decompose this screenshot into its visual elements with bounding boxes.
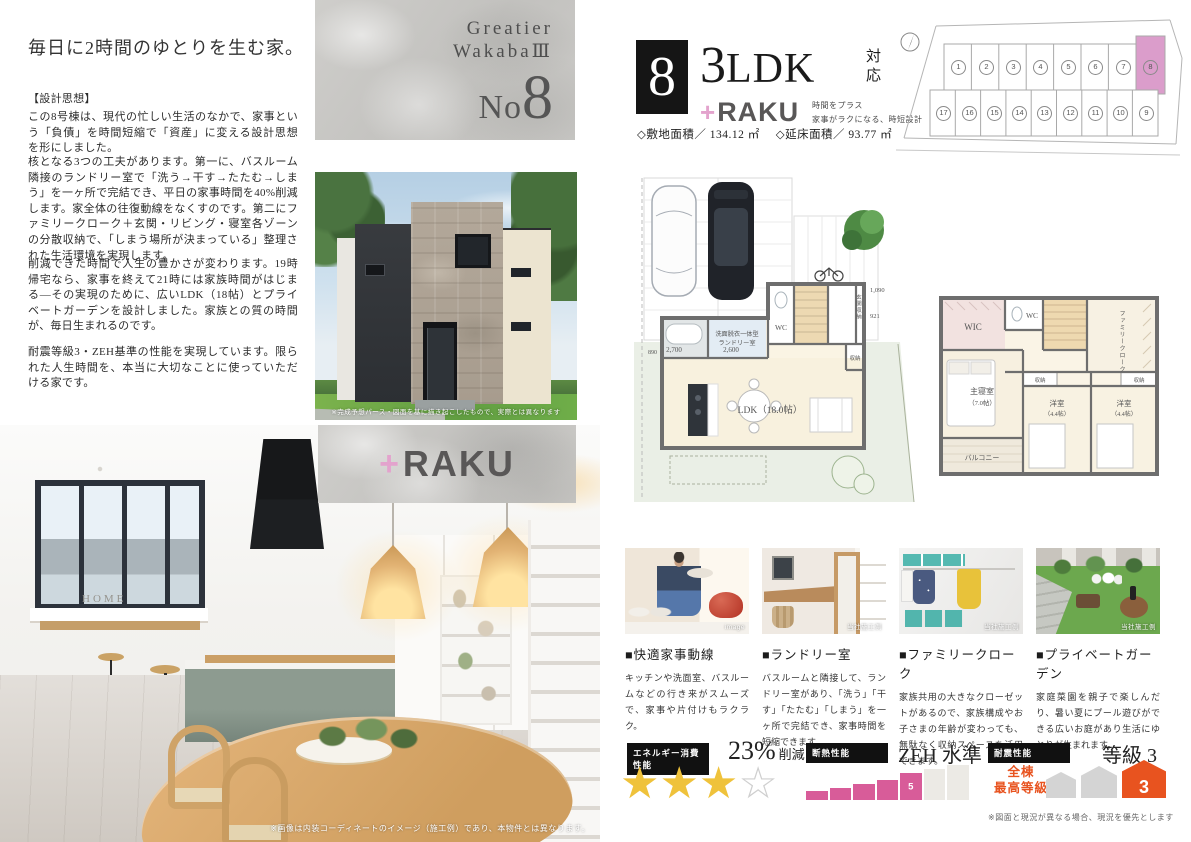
photo-tag: 当社施工例 xyxy=(984,621,1019,631)
storage-label-1f: 収納 xyxy=(849,354,861,362)
navy-garment xyxy=(913,570,935,604)
photo-tag: 当社施工例 xyxy=(847,621,882,631)
brand-block: Greatier WakabaⅢ No8 xyxy=(315,0,575,140)
stone-window xyxy=(455,234,491,268)
balcony-label: バルコニー xyxy=(965,454,1000,462)
paragraph-4: 耐震等級3・ZEH基準の性能を実現しています。限られた人生時間を、本当に大切なこ… xyxy=(28,345,298,392)
red-pot xyxy=(709,592,743,618)
brand-number-value: 8 xyxy=(522,64,553,132)
lot-number-13: 13 xyxy=(1037,106,1052,121)
site-area: ◇敷地面積／ 134.12 ㎡ xyxy=(637,129,760,141)
raku-plus-icon-small: + xyxy=(700,97,715,128)
paragraph-2: 核となる3つの工夫があります。第一に、バスルーム隣接のランドリー室で「洗う→干す… xyxy=(28,155,298,264)
page-title: 毎日に2時間のゆとりを生む家。 xyxy=(28,34,304,60)
plan-type-digit: 3 xyxy=(700,37,726,94)
energy-suffix: 削減 xyxy=(779,747,805,762)
house-icon-small xyxy=(1046,772,1076,798)
photo-tag: 当社施工例 xyxy=(1121,621,1156,631)
plan-type-letters: LDK xyxy=(726,46,815,92)
seismic-badge-line2: 最高等級 xyxy=(993,780,1049,796)
site-plan: 1 2 3 4 5 6 7 8 17 16 15 14 13 12 11 10 … xyxy=(888,8,1188,156)
cream-window-lower xyxy=(511,322,531,331)
star-filled-icon: ★ xyxy=(659,759,698,808)
disclaimer-note: ※図面と現況が異なる場合、現況を優先とします xyxy=(988,812,1174,823)
star-empty-icon: ☆ xyxy=(738,759,777,808)
lot-number-12: 12 xyxy=(1063,106,1078,121)
brand-number: No8 xyxy=(478,63,553,134)
feature-body: キッチンや洗面室、バスルームなどの行き来がスムーズで、家事や片付けもラクラク。 xyxy=(625,670,749,734)
dim-890: 890 xyxy=(648,350,657,356)
floor-plan-1f: 2,700 2,600 890 1,090 921 洗面脱衣一体型 ランドリー室… xyxy=(632,172,922,504)
paragraph-1: この8号棟は、現代の忙しい生活のなかで、家事という「負債」を時間短縮で「資産」に… xyxy=(28,110,298,157)
white-garden-chairs xyxy=(1088,570,1122,586)
feature-photo-cloak: 当社施工例 xyxy=(899,548,1023,634)
design-philosophy-label: 【設計思想】 xyxy=(28,92,298,108)
feature-title: ■プライベートガーデン xyxy=(1036,644,1160,682)
floor-plan-2f-drawing: WIC WC 主寝室 （7.0帖） 収納 収納 洋室 （4.4帖） 洋室 （4.… xyxy=(935,288,1167,498)
storage2-label: 収納 xyxy=(1133,376,1145,384)
feature-card-family-cloak: 当社施工例 ■ファミリークローク 家族共用の大きなクローゼットがあるので、家族構… xyxy=(899,548,1023,769)
dim-2600: 2,600 xyxy=(723,346,739,354)
white-garment xyxy=(901,570,913,602)
lot-number-4: 4 xyxy=(1033,60,1048,75)
cream-window-upper xyxy=(511,268,531,277)
wic-label: WIC xyxy=(964,322,982,332)
centerpiece-greenery xyxy=(300,711,430,757)
wc-label-2f: WC xyxy=(1026,311,1038,320)
feature-photo-kitchen: image xyxy=(625,548,749,634)
lot-number-8: 8 xyxy=(1143,60,1158,75)
area-info: ◇敷地面積／ 134.12 ㎡◇延床面積／ 93.77 ㎡ xyxy=(637,126,908,142)
room2-label: 洋室 xyxy=(1117,398,1133,408)
lot-number-3: 3 xyxy=(1006,60,1021,75)
insulation-performance-label: 断熱性能 xyxy=(806,743,888,763)
level-bar-7 xyxy=(947,765,969,800)
photo-tag: image xyxy=(725,624,745,631)
room1-label: 洋室 xyxy=(1050,398,1066,408)
white-dishes xyxy=(627,604,675,620)
achieved-level: 5 xyxy=(900,781,922,792)
feature-title: ■快適家事動線 xyxy=(625,644,749,663)
exterior-caption: ※完成予想パース・図面を基に描き起こしたもので、実際とは異なります xyxy=(315,406,577,416)
home-sign: HOME xyxy=(82,593,126,605)
chair-1 xyxy=(168,725,230,809)
paragraph-3: 削減できた時間で人生の豊かさが変わります。19時帰宅なら、家事を終えて21時には… xyxy=(28,257,298,335)
lot-number-9: 9 xyxy=(1139,106,1154,121)
house-icon-medium xyxy=(1081,766,1117,798)
level-bar-2 xyxy=(830,788,852,800)
level-bar-5: 5 xyxy=(900,773,922,800)
laundry-label-2: ランドリー室 xyxy=(718,339,755,347)
lot-number-7: 7 xyxy=(1116,60,1131,75)
seismic-badge: 全棟 最高等級 xyxy=(993,764,1049,797)
star-filled-icon: ★ xyxy=(699,759,738,808)
seismic-badge-line1: 全棟 xyxy=(993,764,1049,780)
star-filled-icon: ★ xyxy=(620,759,659,808)
room1-size-label: （4.4帖） xyxy=(1044,410,1070,418)
wood-counter xyxy=(764,586,838,602)
planter-bed xyxy=(1076,594,1100,608)
site-plan-drawing xyxy=(888,8,1188,156)
house-icon-grade3: 3 xyxy=(1122,760,1166,798)
family-cloak-label: ファミリークローク xyxy=(1117,310,1126,373)
lot-number-2: 2 xyxy=(979,60,994,75)
window-wall xyxy=(35,480,205,610)
house-volume-stone xyxy=(411,202,503,404)
dim-1090: 1,090 xyxy=(870,287,885,294)
master-label: 主寝室 xyxy=(970,386,994,396)
feature-title: ■ファミリークローク xyxy=(899,644,1023,682)
lot-number-1: 1 xyxy=(951,60,966,75)
insulation-level-chart: 5 xyxy=(806,764,972,800)
brochure-page: { "left_column": { "headline": "毎日に2時間のゆ… xyxy=(0,0,1191,842)
lot-number-14: 14 xyxy=(1012,106,1027,121)
feature-card-kaji-dousen: image ■快適家事動線 キッチンや洗面室、バスルームなどの行き来がスムーズで… xyxy=(625,548,749,734)
chair-1-seat xyxy=(175,788,223,802)
plan-type: 3LDK xyxy=(700,36,815,95)
basket xyxy=(772,606,794,628)
lot-number-17: 17 xyxy=(936,106,951,121)
master-size-label: （7.0帖） xyxy=(968,398,996,407)
counter-wood-shelf xyxy=(40,621,200,630)
feature-title: ■ランドリー室 xyxy=(762,644,886,663)
sofa-symbol xyxy=(810,398,852,432)
compass-icon xyxy=(901,33,919,51)
floor-area: ◇延床面積／ 93.77 ㎡ xyxy=(776,129,892,141)
ldk-label: LDK（18.0帖） xyxy=(738,404,803,416)
floor-plan-2f: WIC WC 主寝室 （7.0帖） 収納 収納 洋室 （4.4帖） 洋室 （4.… xyxy=(935,288,1167,498)
lot-number-15: 15 xyxy=(987,106,1002,121)
lot-number-6: 6 xyxy=(1088,60,1103,75)
brand-name-line2: WakabaⅢ xyxy=(453,40,553,63)
lot-number-5: 5 xyxy=(1061,60,1076,75)
seismic-house-icons: 3 xyxy=(1046,760,1166,798)
interior-caption: ※画像は内装コーディネートのイメージ（施工例）であり、本物件とは異なります。 xyxy=(270,823,590,834)
lot-number-16: 16 xyxy=(962,106,977,121)
stone-path xyxy=(1036,574,1072,634)
unit-number-box: 8 xyxy=(636,40,688,114)
lot-number-10: 10 xyxy=(1113,106,1128,121)
raku-plus-icon: + xyxy=(379,445,399,484)
feature-photo-garden: 当社施工例 xyxy=(1036,548,1160,634)
feature-card-laundry: 当社施工例 ■ランドリー室 バスルームと隣接して、ランドリー室があり、「洗う」「… xyxy=(762,548,886,750)
bottle xyxy=(1130,586,1136,600)
raku-banner: + RAKU xyxy=(318,425,576,503)
house-volume-cream xyxy=(503,228,551,404)
entrance-door xyxy=(427,328,454,404)
unit-number: 8 xyxy=(648,45,676,109)
plan-type-note: 対応 xyxy=(862,48,883,86)
brand-number-prefix: No xyxy=(478,89,522,126)
grade-number: 3 xyxy=(1139,777,1149,798)
feature-card-private-garden: 当社施工例 ■プライベートガーデン 家庭菜園を親子で楽しんだり、暑い夏にプール遊… xyxy=(1036,548,1160,753)
raku-logo-text-small: RAKU xyxy=(717,97,799,128)
top-shelf-boxes xyxy=(903,554,965,566)
lot-number-11: 11 xyxy=(1088,106,1103,121)
dim-921: 921 xyxy=(870,313,880,320)
room2-size-label: （4.4帖） xyxy=(1111,410,1137,418)
brand-name-line1: Greatier xyxy=(467,18,553,40)
entrance-storage-label: 玄関収納 xyxy=(854,294,862,320)
level-bar-1 xyxy=(806,791,828,800)
wc-label-1f: WC xyxy=(775,323,787,332)
energy-star-rating: ★★★☆ xyxy=(620,758,778,809)
raku-logo-small: + RAKU xyxy=(700,97,799,128)
storage1-label: 収納 xyxy=(1034,376,1046,384)
level-bar-6 xyxy=(924,769,946,800)
exterior-photo: ※完成予想パース・図面を基に描き起こしたもので、実際とは異なります xyxy=(315,172,577,420)
dim-2700: 2,700 xyxy=(666,346,682,354)
level-bar-3 xyxy=(853,784,875,800)
yellow-garment xyxy=(957,569,981,609)
feature-photo-laundry: 当社施工例 xyxy=(762,548,886,634)
window-counter xyxy=(30,608,208,621)
floor-plan-1f-drawing: 2,700 2,600 890 1,090 921 洗面脱衣一体型 ランドリー室… xyxy=(632,172,922,504)
held-dish xyxy=(687,568,713,578)
raku-logo-text: RAKU xyxy=(403,443,515,485)
laundry-label-1: 洗面脱衣一体型 xyxy=(715,330,758,338)
car-outline xyxy=(652,186,696,296)
small-window xyxy=(772,556,794,580)
dark-wall-window xyxy=(365,264,385,276)
bistro-table xyxy=(1120,596,1148,618)
level-bar-4 xyxy=(877,780,899,800)
teal-storage-boxes xyxy=(905,610,963,627)
